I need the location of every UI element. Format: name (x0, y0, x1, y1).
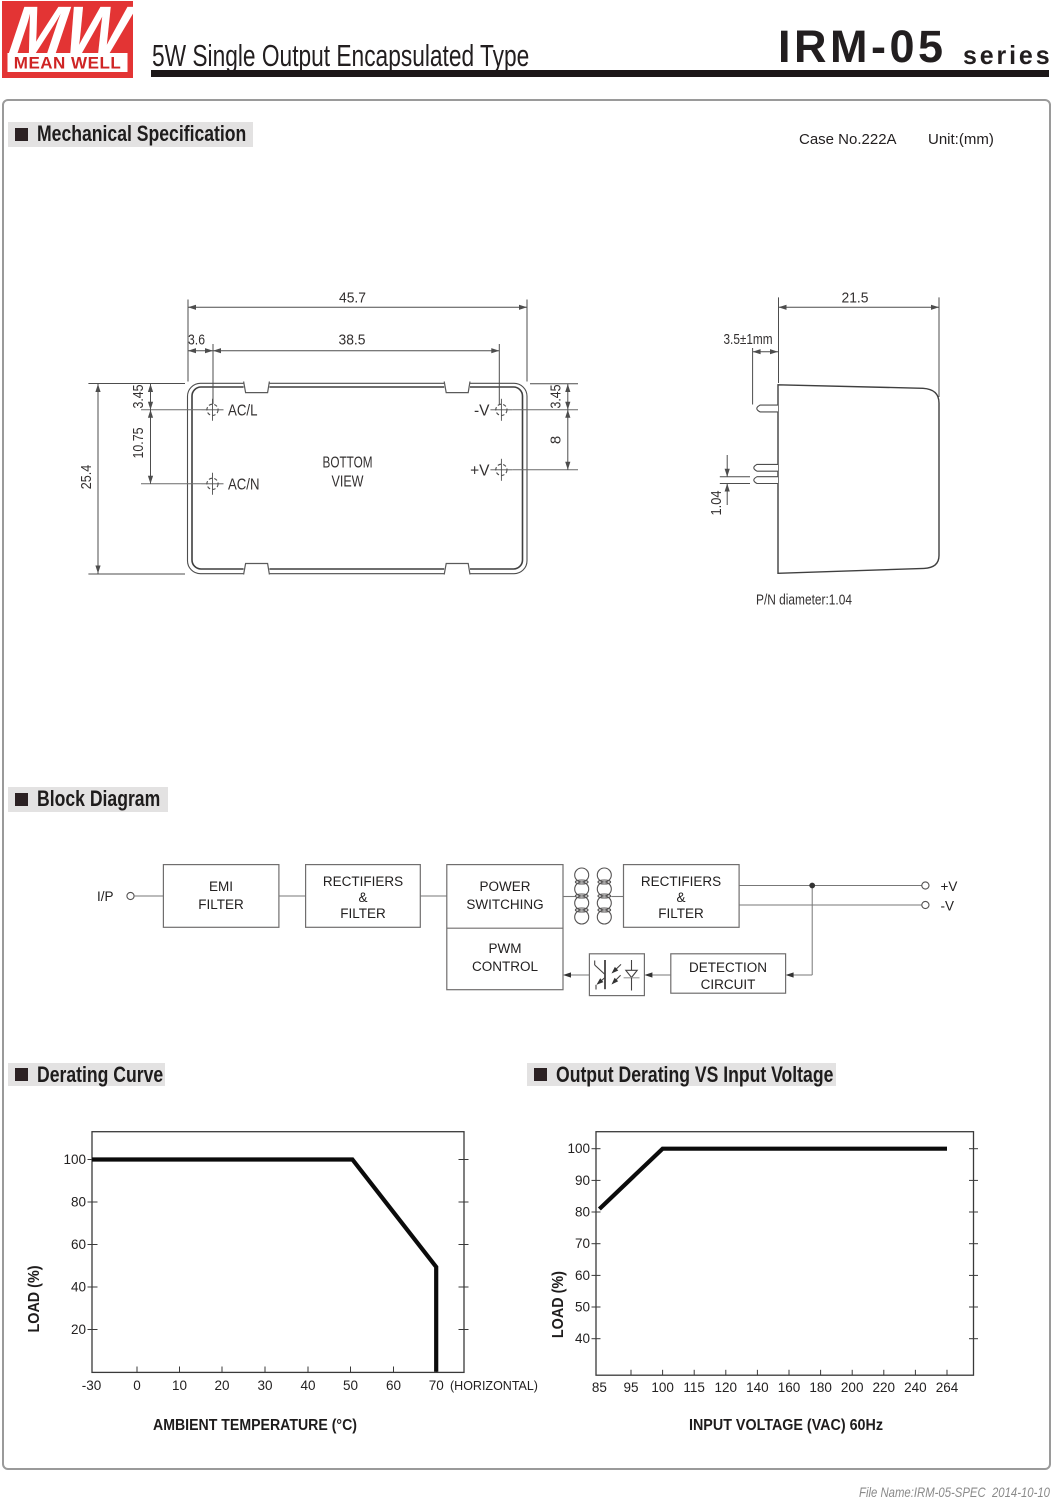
svg-text:3.45: 3.45 (130, 385, 147, 409)
svg-text:85: 85 (592, 1380, 607, 1395)
svg-text:100: 100 (567, 1141, 590, 1156)
svg-text:INPUT VOLTAGE (VAC) 60Hz: INPUT VOLTAGE (VAC) 60Hz (689, 1417, 883, 1434)
svg-text:RECTIFIERS: RECTIFIERS (323, 874, 403, 889)
svg-text:&: & (358, 890, 367, 905)
svg-text:60: 60 (71, 1237, 86, 1252)
svg-text:70: 70 (575, 1236, 590, 1251)
svg-text:50: 50 (575, 1300, 590, 1315)
svg-text:P/N diameter:1.04: P/N diameter:1.04 (756, 592, 852, 609)
svg-text:45.7: 45.7 (339, 290, 366, 307)
svg-text:3.5±1mm: 3.5±1mm (724, 331, 773, 348)
svg-text:-V: -V (474, 402, 490, 419)
svg-text:50: 50 (343, 1378, 358, 1393)
svg-text:1.04: 1.04 (708, 491, 725, 516)
svg-text:I/P: I/P (97, 889, 114, 904)
svg-text:90: 90 (575, 1173, 590, 1188)
svg-text:21.5: 21.5 (842, 290, 869, 307)
svg-text:80: 80 (71, 1195, 86, 1210)
svg-text:CONTROL: CONTROL (472, 959, 538, 974)
svg-text:38.5: 38.5 (339, 332, 366, 349)
svg-text:200: 200 (841, 1380, 864, 1395)
svg-text:120: 120 (715, 1380, 738, 1395)
svg-text:20: 20 (71, 1322, 86, 1337)
svg-text:CIRCUIT: CIRCUIT (701, 977, 756, 992)
svg-text:AMBIENT TEMPERATURE (°C): AMBIENT TEMPERATURE (°C) (153, 1417, 357, 1434)
svg-text:3.6: 3.6 (188, 332, 205, 349)
svg-text:BOTTOM: BOTTOM (323, 455, 373, 472)
svg-text:SWITCHING: SWITCHING (466, 897, 543, 912)
svg-text:(HORIZONTAL): (HORIZONTAL) (450, 1379, 538, 1393)
svg-text:80: 80 (575, 1205, 590, 1220)
svg-text:+V: +V (941, 879, 958, 894)
svg-text:3.45: 3.45 (548, 385, 565, 409)
svg-text:40: 40 (300, 1378, 315, 1393)
svg-text:LOAD (%): LOAD (%) (26, 1266, 43, 1333)
svg-text:20: 20 (214, 1378, 229, 1393)
svg-text:70: 70 (429, 1378, 444, 1393)
svg-text:160: 160 (778, 1380, 801, 1395)
svg-text:-V: -V (941, 899, 955, 914)
svg-text:FILTER: FILTER (198, 897, 244, 912)
svg-text:DETECTION: DETECTION (689, 960, 767, 975)
svg-text:140: 140 (746, 1380, 769, 1395)
svg-text:LOAD (%): LOAD (%) (550, 1271, 567, 1338)
svg-text:FILTER: FILTER (340, 906, 386, 921)
svg-text:100: 100 (63, 1152, 86, 1167)
svg-text:&: & (676, 890, 685, 905)
svg-text:PWM: PWM (489, 941, 522, 956)
svg-text:264: 264 (936, 1380, 959, 1395)
svg-text:220: 220 (873, 1380, 896, 1395)
svg-text:-30: -30 (82, 1378, 102, 1393)
svg-text:180: 180 (809, 1380, 832, 1395)
svg-text:40: 40 (575, 1331, 590, 1346)
svg-text:115: 115 (683, 1380, 705, 1395)
svg-text:25.4: 25.4 (78, 465, 95, 490)
svg-text:8: 8 (548, 436, 565, 444)
svg-text:30: 30 (257, 1378, 272, 1393)
svg-text:POWER: POWER (479, 879, 530, 894)
svg-text:AC/N: AC/N (228, 476, 260, 493)
svg-text:AC/L: AC/L (228, 402, 258, 419)
svg-text:RECTIFIERS: RECTIFIERS (641, 874, 721, 889)
svg-text:EMI: EMI (209, 879, 233, 894)
svg-text:240: 240 (904, 1380, 927, 1395)
svg-text:FILTER: FILTER (658, 906, 704, 921)
svg-text:95: 95 (623, 1380, 638, 1395)
svg-text:10: 10 (172, 1378, 187, 1393)
svg-text:60: 60 (575, 1268, 590, 1283)
svg-text:+V: +V (470, 462, 490, 479)
svg-text:10.75: 10.75 (130, 428, 147, 459)
svg-text:60: 60 (386, 1378, 401, 1393)
svg-text:40: 40 (71, 1280, 86, 1295)
svg-text:100: 100 (651, 1380, 674, 1395)
svg-text:0: 0 (133, 1378, 141, 1393)
svg-text:VIEW: VIEW (332, 474, 364, 491)
